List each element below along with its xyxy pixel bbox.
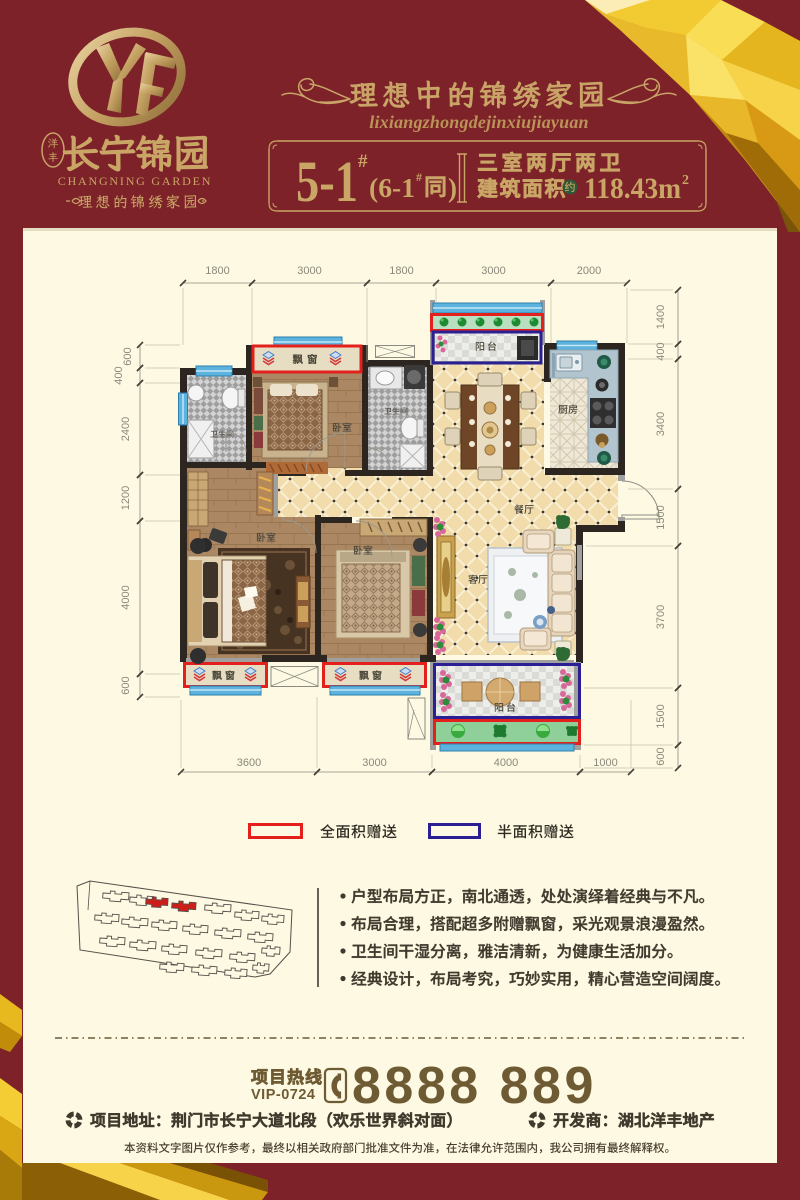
svg-text:2: 2: [682, 173, 689, 188]
svg-text:2000: 2000: [577, 265, 601, 277]
svg-text:#: #: [416, 170, 422, 184]
svg-text:2400: 2400: [120, 417, 132, 441]
svg-text:CHANGNING GARDEN: CHANGNING GARDEN: [58, 174, 212, 188]
svg-text:VIP-0724: VIP-0724: [251, 1087, 315, 1103]
svg-text:3400: 3400: [655, 412, 667, 436]
svg-text:1200: 1200: [120, 486, 132, 510]
svg-text:3700: 3700: [655, 605, 667, 629]
svg-text:lixiangzhongdejinxiujiayuan: lixiangzhongdejinxiujiayuan: [369, 112, 588, 132]
svg-text:3600: 3600: [237, 757, 261, 769]
svg-text:3000: 3000: [362, 757, 386, 769]
svg-text:8888 889: 8888 889: [352, 1057, 597, 1115]
svg-text:118.43m: 118.43m: [584, 172, 681, 205]
svg-text:4000: 4000: [120, 585, 132, 609]
svg-text:5-1: 5-1: [296, 149, 358, 214]
svg-text:3000: 3000: [481, 265, 505, 277]
svg-text:400: 400: [655, 342, 667, 360]
svg-text:(6-1: (6-1: [369, 173, 415, 203]
svg-text:#: #: [358, 151, 368, 172]
svg-text:1000: 1000: [593, 757, 617, 769]
svg-text:1500: 1500: [655, 704, 667, 728]
svg-text:): ): [448, 173, 457, 203]
svg-text:3000: 3000: [297, 265, 321, 277]
svg-text:1800: 1800: [205, 265, 229, 277]
svg-text:400: 400: [113, 366, 125, 384]
svg-text:1500: 1500: [655, 505, 667, 529]
svg-text:600: 600: [120, 676, 132, 694]
svg-text:1800: 1800: [389, 265, 413, 277]
svg-text:1400: 1400: [655, 305, 667, 329]
svg-text:600: 600: [122, 347, 134, 365]
svg-text:600: 600: [655, 747, 667, 765]
svg-text:4000: 4000: [494, 757, 518, 769]
